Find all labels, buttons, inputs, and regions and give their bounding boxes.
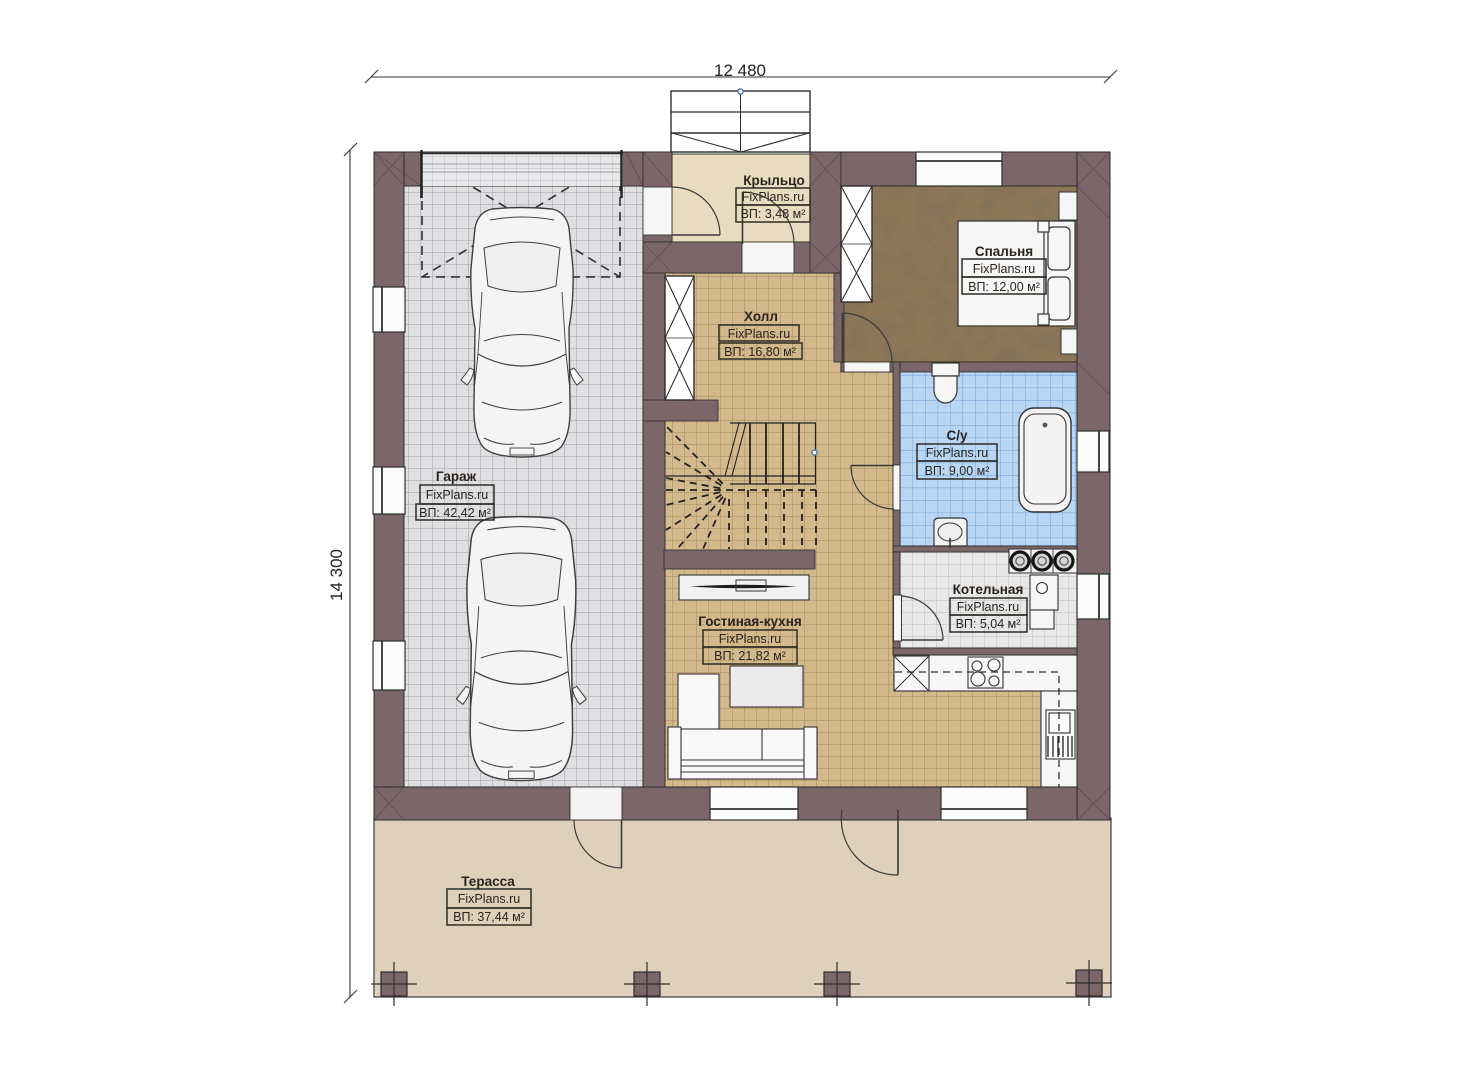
svg-text:FixPlans.ru: FixPlans.ru (426, 488, 489, 502)
svg-text:С/у: С/у (946, 428, 968, 443)
svg-text:Холл: Холл (744, 309, 778, 324)
svg-text:ВП: 21,82 м²: ВП: 21,82 м² (714, 649, 786, 663)
svg-text:Гостиная-кухня: Гостиная-кухня (698, 614, 801, 629)
svg-text:FixPlans.ru: FixPlans.ru (728, 327, 791, 341)
svg-text:Крыльцо: Крыльцо (743, 173, 804, 188)
svg-text:FixPlans.ru: FixPlans.ru (926, 446, 989, 460)
svg-text:ВП: 5,04 м²: ВП: 5,04 м² (956, 617, 1021, 631)
svg-text:Котельная: Котельная (953, 582, 1024, 597)
svg-text:ВП: 42,42 м²: ВП: 42,42 м² (419, 506, 491, 520)
svg-text:ВП: 3,48 м²: ВП: 3,48 м² (741, 207, 806, 221)
svg-text:Терасса: Терасса (461, 874, 515, 889)
svg-text:FixPlans.ru: FixPlans.ru (957, 600, 1020, 614)
svg-text:FixPlans.ru: FixPlans.ru (973, 262, 1036, 276)
svg-text:ВП: 37,44 м²: ВП: 37,44 м² (453, 910, 525, 924)
svg-text:Спальня: Спальня (975, 244, 1033, 259)
svg-text:FixPlans.ru: FixPlans.ru (742, 190, 805, 204)
svg-text:14 300: 14 300 (327, 549, 346, 601)
svg-text:ВП: 9,00 м²: ВП: 9,00 м² (925, 464, 990, 478)
svg-text:FixPlans.ru: FixPlans.ru (458, 892, 521, 906)
svg-text:ВП: 16,80 м²: ВП: 16,80 м² (724, 345, 796, 359)
svg-text:ВП: 12,00 м²: ВП: 12,00 м² (968, 280, 1040, 294)
svg-text:FixPlans.ru: FixPlans.ru (719, 632, 782, 646)
svg-text:Гараж: Гараж (436, 469, 477, 484)
svg-text:12 480: 12 480 (714, 61, 766, 80)
